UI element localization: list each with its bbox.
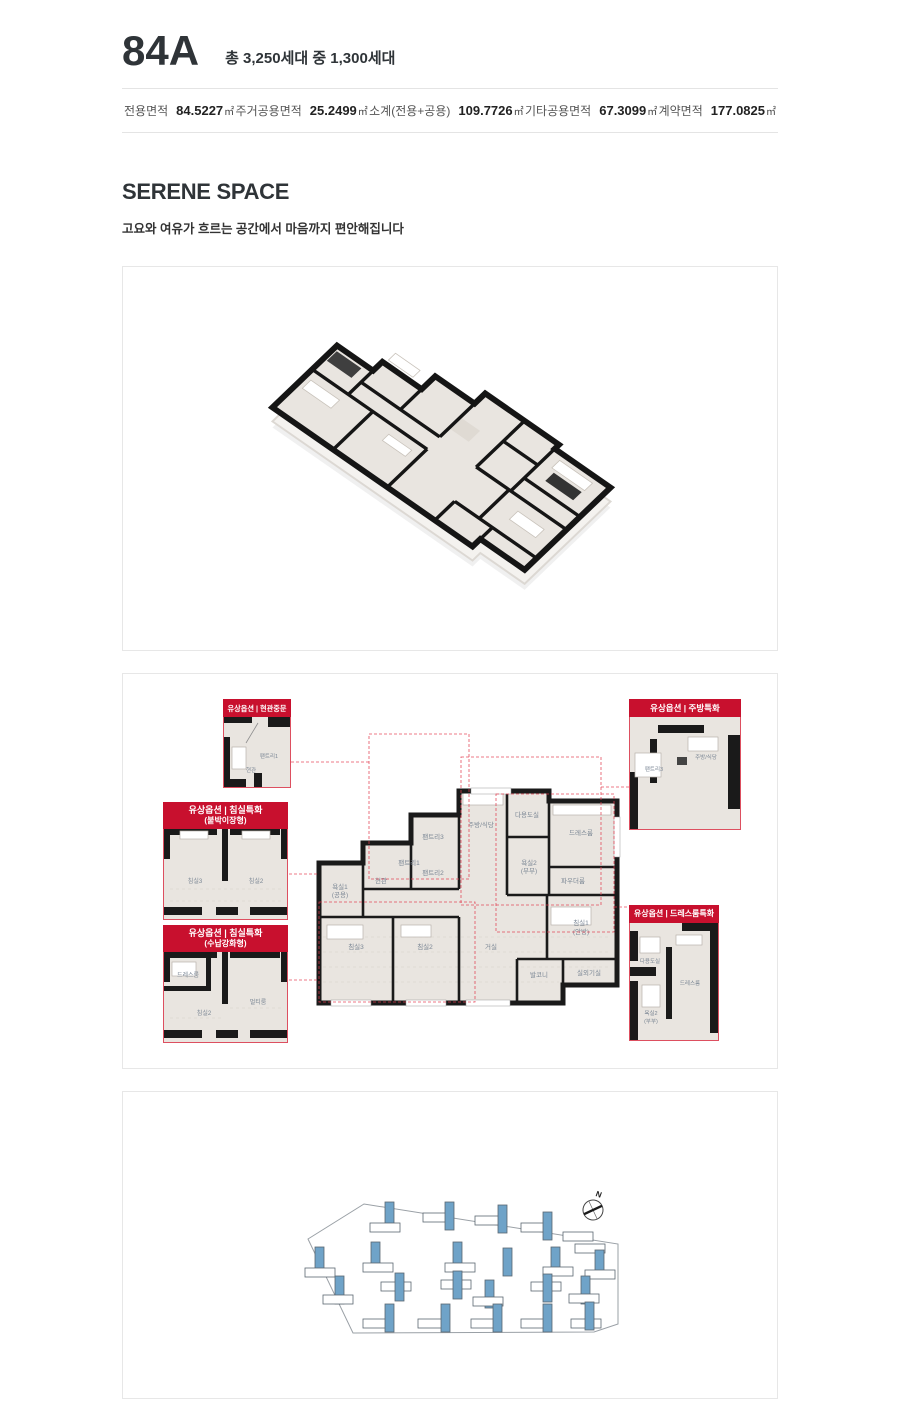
spec-label: 계약면적 <box>659 102 703 119</box>
callout-dressroom-special: 유상옵션 | 드레스룸특화 다용도실 드레스룸 욕실2 (부부) <box>629 905 719 1041</box>
svg-text:(부부): (부부) <box>521 867 537 875</box>
spec-other-common-area: 기타공용면적 67.3099㎡ <box>525 102 657 119</box>
svg-text:발코니: 발코니 <box>530 970 548 979</box>
callout-kitchen-special: 유상옵션 | 주방특화 팬트리3 주방/식당 <box>629 699 741 830</box>
spec-contract-area: 계약면적 177.0825㎡ <box>659 102 776 119</box>
svg-text:파우더룸: 파우더룸 <box>561 876 585 885</box>
svg-text:주방/식당: 주방/식당 <box>695 753 717 761</box>
unit-type-title: 84A <box>122 30 199 72</box>
svg-text:팬트리1: 팬트리1 <box>260 752 278 760</box>
svg-text:팬트리1: 팬트리1 <box>398 858 420 867</box>
site-building <box>498 1205 507 1233</box>
section-heading: SERENE SPACE <box>122 179 778 205</box>
spec-label: 주거공용면적 <box>236 102 302 119</box>
site-building <box>385 1304 394 1332</box>
spec-label: 기타공용면적 <box>525 102 591 119</box>
svg-text:실외기실: 실외기실 <box>577 968 601 977</box>
section-description: 고요와 여유가 흐르는 공간에서 마음까지 편안해집니다 <box>122 218 778 237</box>
unit-count-subtitle: 총 3,250세대 중 1,300세대 <box>225 47 395 72</box>
svg-text:팬트리3: 팬트리3 <box>422 832 444 841</box>
callout-title: 유상옵션 | 주방특화 <box>629 699 741 717</box>
svg-text:다용도실: 다용도실 <box>640 957 660 965</box>
callout-bedroom-builtin-plan: 침실3 침실2 <box>164 829 287 919</box>
compass-north-label: N <box>594 1189 603 1200</box>
site-building <box>441 1304 450 1332</box>
spec-value: 177.0825㎡ <box>711 103 776 118</box>
callout-title: 유상옵션 | 드레스룸특화 <box>629 905 719 923</box>
site-building <box>543 1212 552 1240</box>
site-building <box>453 1271 462 1299</box>
svg-text:침실1: 침실1 <box>573 918 589 927</box>
site-building <box>503 1248 512 1276</box>
svg-text:다용도실: 다용도실 <box>515 810 539 819</box>
svg-text:드레스룸: 드레스룸 <box>680 979 700 987</box>
site-building <box>563 1232 593 1241</box>
page-content: 84A 총 3,250세대 중 1,300세대 전용면적 84.5227㎡ 주거… <box>122 0 778 1399</box>
main-floor-plan: 현관 팬트리1 팬트리2 팬트리3 욕실1 (공용) 주방/식당 다용도실 드레… <box>311 787 621 1007</box>
svg-text:침실3: 침실3 <box>188 877 203 885</box>
isometric-plan-panel <box>122 266 778 651</box>
area-spec-bar: 전용면적 84.5227㎡ 주거공용면적 25.2499㎡ 소계(전용+공용) … <box>122 88 778 133</box>
callout-bedroom-storage-plan: 드레스룸 침실2 멀티룸 <box>164 952 287 1042</box>
spec-value: 84.5227㎡ <box>176 103 234 118</box>
svg-text:드레스룸: 드레스룸 <box>177 971 200 979</box>
svg-text:(부부): (부부) <box>644 1018 658 1025</box>
svg-text:거실: 거실 <box>485 942 497 951</box>
site-building <box>370 1223 400 1232</box>
callout-entrance-plan: 팬트리1 현관 <box>224 717 290 787</box>
svg-text:멀티룸: 멀티룸 <box>250 998 267 1006</box>
spec-exclusive-area: 전용면적 84.5227㎡ <box>124 102 234 119</box>
svg-text:(공용): (공용) <box>332 891 348 899</box>
svg-text:현관: 현관 <box>375 876 387 885</box>
svg-text:침실2: 침실2 <box>197 1009 212 1017</box>
option-plan-panel: 현관 팬트리1 팬트리2 팬트리3 욕실1 (공용) 주방/식당 다용도실 드레… <box>122 673 778 1069</box>
svg-text:욕실2: 욕실2 <box>521 858 537 867</box>
spec-value: 67.3099㎡ <box>599 103 657 118</box>
site-building <box>363 1263 393 1272</box>
site-plan-panel: N <box>122 1091 778 1399</box>
svg-text:현관: 현관 <box>246 766 256 774</box>
spec-residential-common-area: 주거공용면적 25.2499㎡ <box>236 102 368 119</box>
site-building <box>585 1302 594 1330</box>
svg-text:(안방): (안방) <box>573 927 589 936</box>
spec-label: 전용면적 <box>124 102 168 119</box>
callout-kitchen-plan: 팬트리3 주방/식당 <box>630 717 740 829</box>
svg-text:드레스룸: 드레스룸 <box>569 828 593 837</box>
callout-title: 유상옵션 | 현관중문 <box>223 699 291 717</box>
svg-text:욕실2: 욕실2 <box>644 1009 657 1017</box>
svg-text:침실3: 침실3 <box>348 942 364 951</box>
callout-title: 유상옵션 | 침실특화 (수납강화형) <box>163 925 288 952</box>
svg-text:침실2: 침실2 <box>249 877 264 885</box>
isometric-floor-plan <box>123 267 777 650</box>
site-building <box>395 1273 404 1301</box>
spec-label: 소계(전용+공용) <box>369 102 450 119</box>
svg-text:주방/식당: 주방/식당 <box>468 820 494 829</box>
site-building <box>323 1295 353 1304</box>
spec-value: 109.7726㎡ <box>458 103 523 118</box>
site-building <box>305 1268 335 1277</box>
site-plan: N <box>123 1092 777 1398</box>
callout-bedroom-storage: 유상옵션 | 침실특화 (수납강화형) 드레 <box>163 925 288 1043</box>
callout-title: 유상옵션 | 침실특화 (붙박이장형) <box>163 802 288 829</box>
callout-dressroom-plan: 다용도실 드레스룸 욕실2 (부부) <box>630 923 718 1040</box>
site-building <box>569 1294 599 1303</box>
unit-header: 84A 총 3,250세대 중 1,300세대 <box>122 30 778 72</box>
spec-value: 25.2499㎡ <box>310 103 368 118</box>
spec-subtotal-area: 소계(전용+공용) 109.7726㎡ <box>369 102 523 119</box>
site-building <box>543 1304 552 1332</box>
callout-entrance-door: 유상옵션 | 현관중문 팬트리1 현관 <box>223 699 291 788</box>
svg-text:팬트리2: 팬트리2 <box>422 868 444 877</box>
svg-text:침실2: 침실2 <box>417 942 433 951</box>
site-building <box>445 1202 454 1230</box>
site-building <box>543 1274 552 1302</box>
callout-bedroom-builtin: 유상옵션 | 침실특화 (붙박이장형) 침실3 <box>163 802 288 920</box>
svg-text:팬트리3: 팬트리3 <box>645 765 663 773</box>
site-building <box>493 1304 502 1332</box>
compass-icon: N <box>580 1187 609 1223</box>
svg-text:욕실1: 욕실1 <box>332 882 348 891</box>
